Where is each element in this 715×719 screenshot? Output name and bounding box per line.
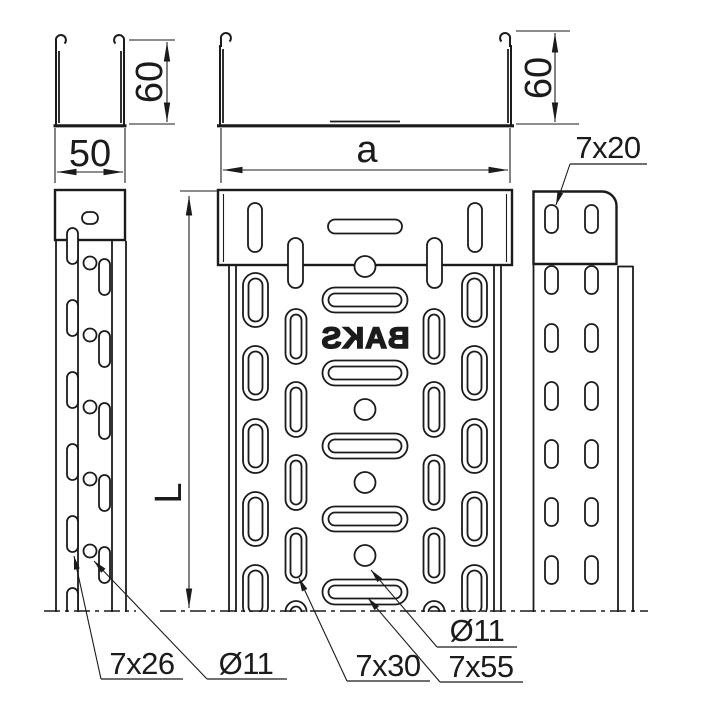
drawing-svg: 50 60 a 60 — [0, 0, 715, 719]
brand-mark-mirrored: BAKS — [320, 322, 409, 355]
flange-hole — [82, 212, 98, 224]
label-7x20: 7x20 — [575, 130, 640, 165]
edge-curl-icon — [500, 33, 510, 47]
edge-curl-icon — [221, 33, 231, 47]
dim-small-height: 60 — [129, 40, 175, 124]
cross-section-large-view — [217, 33, 514, 126]
edge-curl-icon — [114, 35, 124, 49]
dim-large-height: 60 — [516, 31, 579, 124]
side-view-left — [55, 190, 126, 624]
edge-curl-icon — [56, 35, 66, 49]
cross-section-small-view — [54, 35, 127, 126]
dim-small-width: 50 — [55, 128, 125, 183]
plan-view: BAKS — [218, 190, 512, 656]
dim-text-a: a — [356, 129, 378, 171]
technical-drawing: 50 60 a 60 — [0, 0, 715, 719]
label-7x30: 7x30 — [355, 648, 420, 683]
dim-text-L: L — [148, 482, 190, 503]
dim-text-60: 60 — [129, 61, 171, 103]
dim-text-50: 50 — [69, 133, 111, 175]
label-7x55: 7x55 — [448, 649, 513, 684]
dim-large-width: a — [221, 128, 510, 183]
label-7x26: 7x26 — [109, 646, 174, 681]
side-view-right — [534, 192, 634, 616]
label-d11-left: Ø11 — [219, 646, 274, 681]
label-d11-plan: Ø11 — [450, 613, 505, 648]
dim-text-60: 60 — [518, 57, 560, 99]
dim-length: L — [148, 191, 217, 608]
left-strip-perforations — [67, 228, 110, 624]
